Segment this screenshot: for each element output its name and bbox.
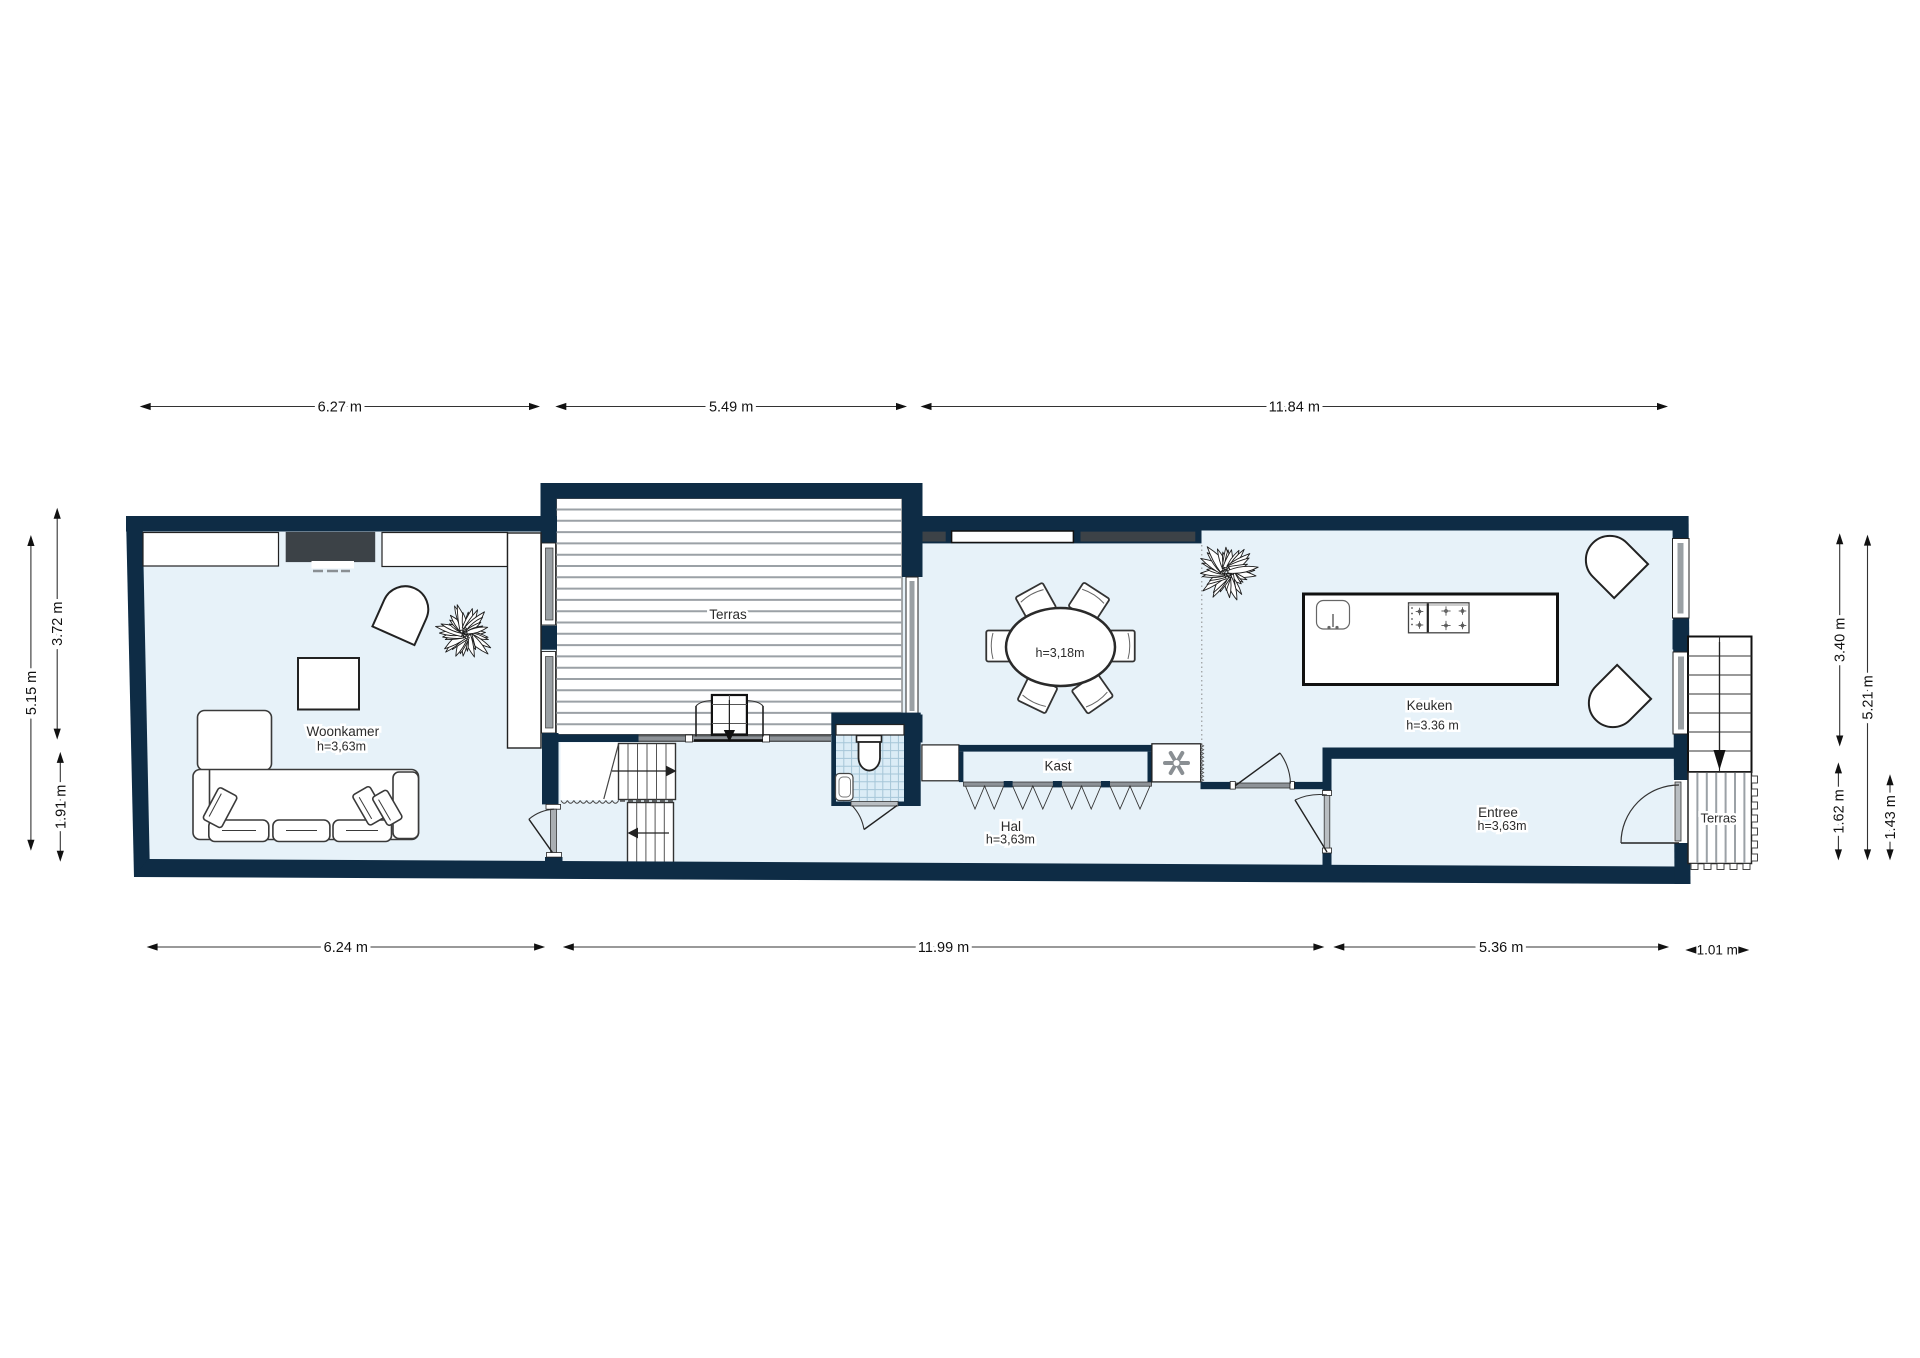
svg-text:Keuken: Keuken	[1407, 698, 1453, 713]
svg-text:Entree: Entree	[1478, 805, 1518, 820]
svg-text:h=3,18m: h=3,18m	[1036, 646, 1085, 660]
svg-text:Terras: Terras	[1700, 810, 1737, 825]
svg-text:3.40 m: 3.40 m	[1833, 618, 1849, 662]
svg-text:5.15 m: 5.15 m	[24, 671, 40, 715]
svg-text:11.99 m: 11.99 m	[918, 940, 969, 956]
svg-text:5.49 m: 5.49 m	[709, 400, 753, 416]
svg-text:6.24 m: 6.24 m	[324, 940, 368, 956]
svg-text:h=3,63m: h=3,63m	[986, 833, 1035, 847]
svg-text:5.21 m: 5.21 m	[1861, 675, 1877, 719]
svg-text:5.36 m: 5.36 m	[1479, 940, 1523, 956]
svg-text:3.72 m: 3.72 m	[50, 602, 66, 646]
svg-text:11.84 m: 11.84 m	[1269, 400, 1320, 416]
svg-text:h=3,63m: h=3,63m	[317, 740, 366, 754]
svg-text:h=3.36 m: h=3.36 m	[1406, 718, 1458, 732]
svg-text:Woonkamer: Woonkamer	[307, 724, 380, 739]
svg-text:1.91 m: 1.91 m	[53, 785, 69, 829]
svg-text:1.01 m: 1.01 m	[1697, 943, 1738, 958]
svg-text:1.62 m: 1.62 m	[1831, 789, 1847, 833]
svg-text:1.43 m: 1.43 m	[1883, 795, 1899, 839]
svg-text:Terras: Terras	[709, 607, 747, 622]
svg-text:6.27 m: 6.27 m	[318, 400, 362, 416]
svg-text:h=3,63m: h=3,63m	[1478, 819, 1527, 833]
svg-text:Kast: Kast	[1044, 759, 1071, 774]
